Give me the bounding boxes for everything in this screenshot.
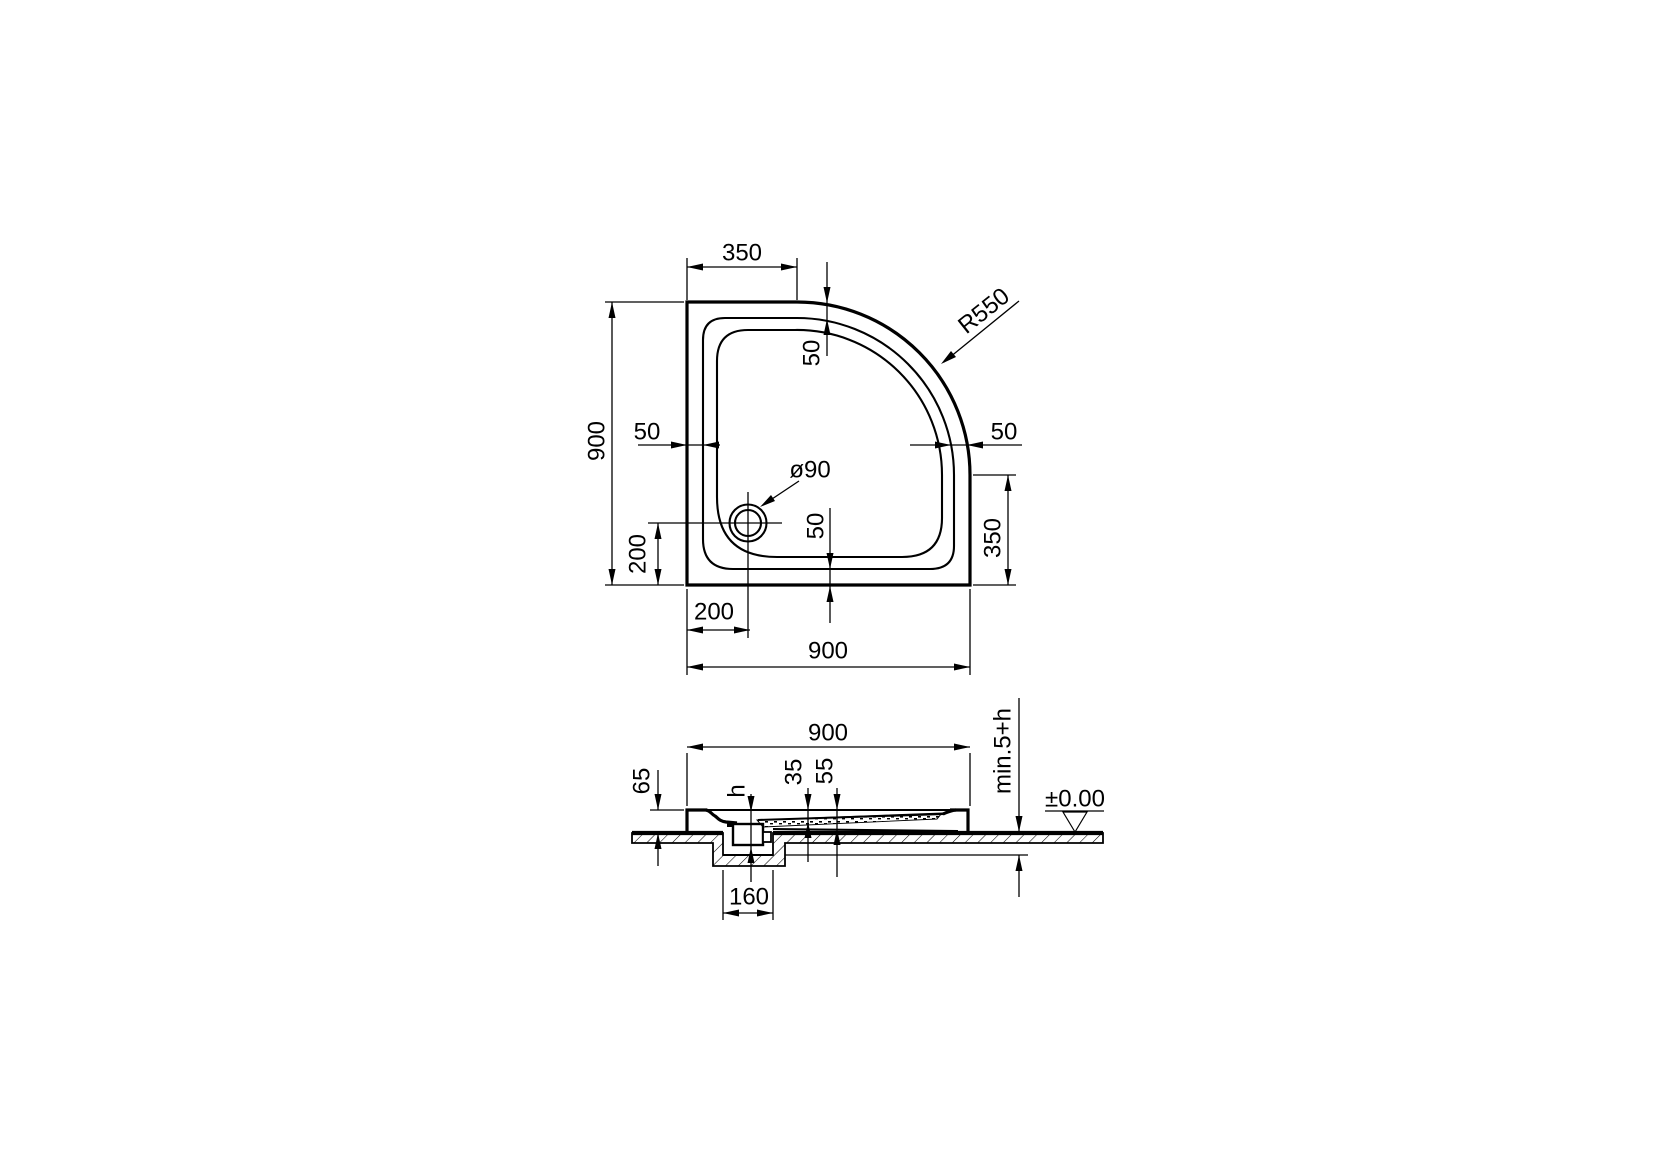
dim-label-drain-from-bottom-200: 200 — [625, 534, 652, 574]
plan-view: 350 R550 50 900 50 — [584, 240, 1023, 676]
dim-label-rim-top-50: 50 — [799, 340, 826, 367]
dim-label-rim-bottom-50: 50 — [803, 513, 830, 540]
dim-drain-from-bottom-200: 200 — [625, 523, 662, 585]
dim-label-r550: R550 — [953, 283, 1015, 340]
drawing-sheet: 350 R550 50 900 50 — [0, 0, 1653, 1167]
dim-top-350: 350 — [687, 240, 797, 301]
drain-trap-outlet — [763, 832, 771, 842]
dim-label-tray-height-65: 65 — [629, 768, 656, 795]
section-view: 900 65 h 35 55 — [629, 698, 1105, 920]
dim-label-width-900: 900 — [808, 638, 848, 665]
dim-label-height-900: 900 — [584, 421, 611, 461]
dim-label-recess-width-160: 160 — [729, 884, 769, 911]
dim-drain-from-left-200: 200 — [687, 589, 750, 675]
dim-tray-height-65: 65 — [629, 768, 685, 866]
level-triangle-icon — [1063, 812, 1087, 832]
floor-level-marker: ±0.00 — [1045, 786, 1105, 833]
dim-rim-bottom-50: 50 — [803, 508, 834, 623]
dim-radius-r550: R550 — [941, 283, 1019, 364]
drain-trap-body — [733, 824, 763, 845]
tray-underside — [773, 829, 958, 831]
dim-label-recess-depth: min.5+h — [990, 708, 1017, 794]
dim-label-rim-left-50: 50 — [634, 419, 661, 446]
dim-label-trap-height-h: h — [724, 784, 751, 797]
dim-label-floor-level: ±0.00 — [1045, 786, 1105, 813]
dim-right-350: 350 — [973, 475, 1016, 585]
tray-outer-contour — [687, 302, 970, 585]
dim-label-basin-depth-35: 35 — [781, 759, 808, 786]
drain-flange — [727, 821, 733, 827]
floor-slab — [632, 833, 1103, 866]
dim-label-rim-right-50: 50 — [991, 419, 1018, 446]
dim-label-drain-diameter: ø90 — [789, 457, 830, 484]
dim-label-right-350: 350 — [980, 518, 1007, 558]
dim-recess-width-160: 160 — [723, 870, 773, 920]
dim-label-section-width-900: 900 — [808, 720, 848, 747]
dim-label-shell-depth-55: 55 — [812, 758, 839, 785]
technical-drawing: 350 R550 50 900 50 — [0, 0, 1653, 1167]
dim-label-drain-from-left-200: 200 — [694, 599, 734, 626]
dim-rim-top-50: 50 — [799, 262, 831, 366]
dim-drain-diameter: ø90 — [760, 457, 831, 508]
dim-label-top-350: 350 — [722, 240, 762, 267]
dim-rim-left-50: 50 — [634, 419, 720, 449]
